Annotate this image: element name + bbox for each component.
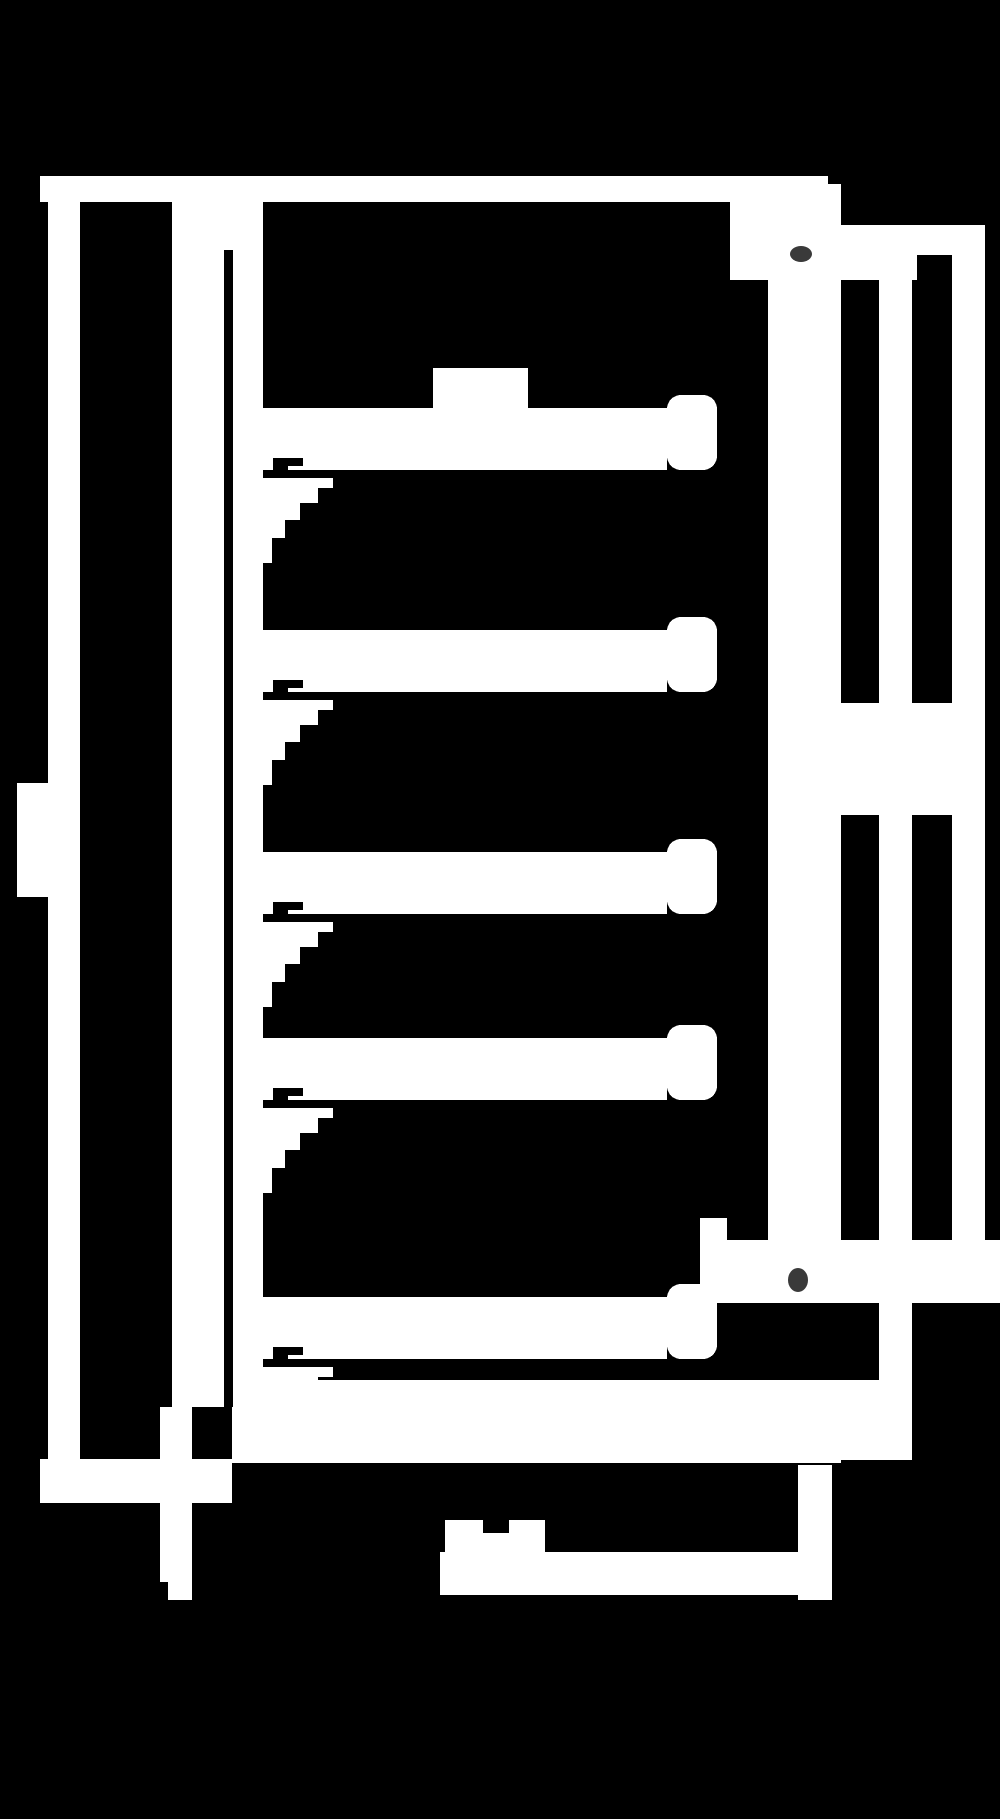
left-lining-top-merge: [172, 202, 263, 250]
hinge-bridge: [841, 703, 952, 815]
top-right-wing: [841, 225, 985, 280]
wall-gap-line: [224, 250, 233, 1407]
shelf-1-lip: [667, 395, 717, 470]
foot-band: [40, 1459, 232, 1503]
shelf-1-block: [433, 368, 528, 408]
top-right-step: [824, 184, 841, 280]
shelf-2-lip: [667, 617, 717, 692]
cabinet-cross-section-drawing: [0, 0, 1000, 1819]
door-bottom-rail: [700, 1240, 1000, 1303]
base-right-column: [798, 1465, 832, 1600]
right-wall-outer-column: [952, 280, 985, 1303]
left-lining: [233, 202, 263, 1463]
shelf-5-bar: [263, 1297, 667, 1359]
rail-fill-lower: [841, 1380, 912, 1460]
base-band: [440, 1552, 798, 1595]
island-notch: [483, 1520, 509, 1533]
right-wall-inner-column: [768, 280, 841, 1240]
artifact-dot-bottom: [788, 1268, 808, 1292]
inner-left-panel: [172, 202, 224, 1407]
door-handle: [17, 783, 48, 897]
pedestal-foot: [168, 1582, 192, 1600]
shelf-2-bar: [263, 630, 667, 692]
left-outer-wall: [48, 202, 80, 1459]
rail-fill-upper: [880, 1303, 912, 1380]
shelf-1-bar: [263, 408, 667, 470]
top-band: [40, 176, 828, 202]
shelf-4-lip: [667, 1025, 717, 1100]
shelf-4-bar: [263, 1038, 667, 1100]
slab-bottom-dash: [705, 1463, 752, 1472]
floor-slab: [232, 1380, 841, 1463]
artifact-dot-top: [790, 246, 812, 262]
drawing-canvas: [0, 0, 1000, 1819]
top-right-notch: [917, 255, 952, 280]
shelf-3-lip: [667, 839, 717, 914]
rail-left-step: [700, 1218, 727, 1240]
shelf-3-bar: [263, 852, 667, 914]
top-right-block: [730, 176, 824, 280]
